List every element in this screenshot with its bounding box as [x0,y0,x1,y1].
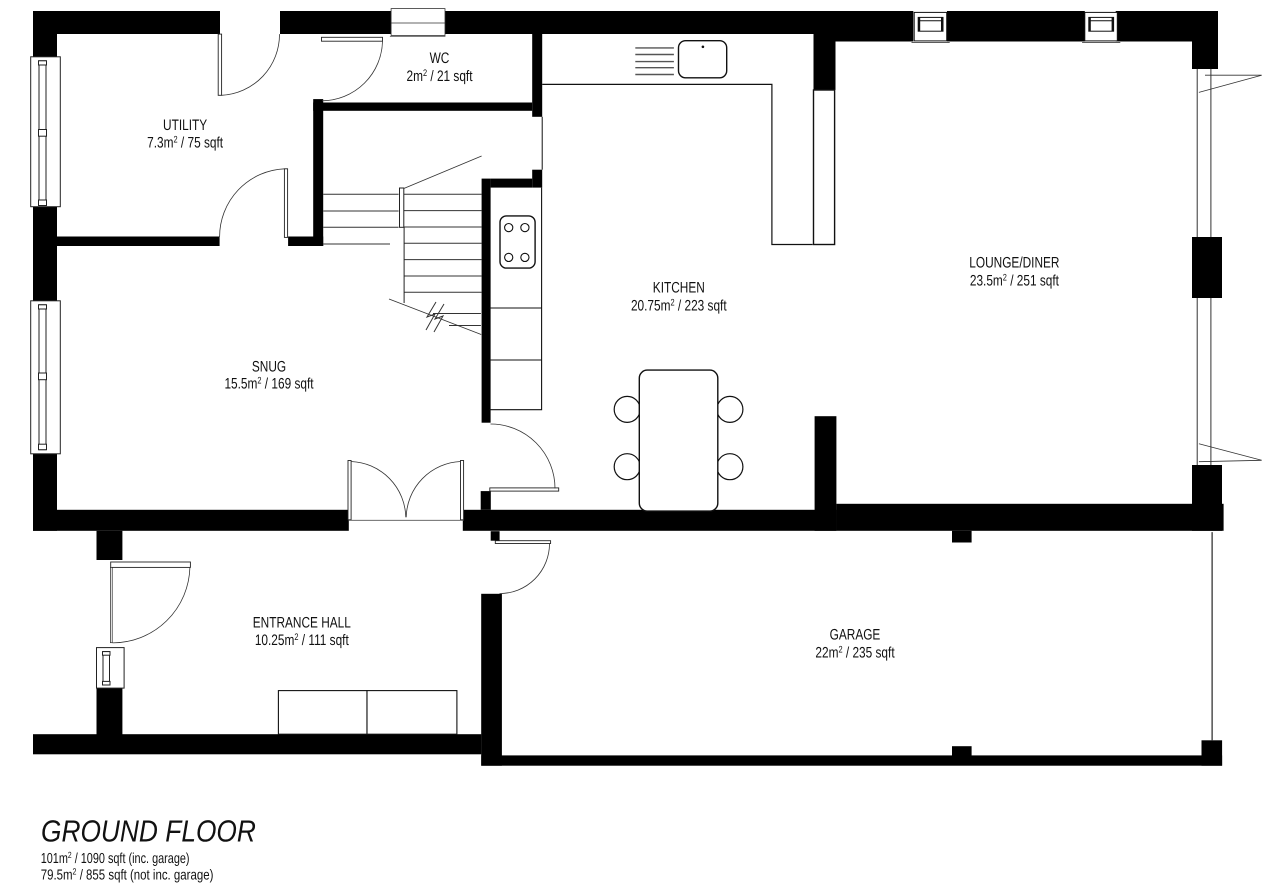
svg-text:101m2 / 1090 sqft (inc. garage: 101m2 / 1090 sqft (inc. garage) [41,850,190,867]
svg-text:10.25m2 / 111 sqft: 10.25m2 / 111 sqft [255,632,350,649]
svg-text:KITCHEN: KITCHEN [653,280,705,297]
svg-text:GARAGE: GARAGE [830,627,881,644]
svg-text:20.75m2 / 223 sqft: 20.75m2 / 223 sqft [631,297,727,314]
svg-text:15.5m2 / 169 sqft: 15.5m2 / 169 sqft [224,376,314,393]
svg-text:GROUND FLOOR: GROUND FLOOR [41,815,256,849]
svg-text:WC: WC [430,50,450,67]
svg-text:22m2 / 235 sqft: 22m2 / 235 sqft [815,644,895,661]
svg-text:7.3m2 / 75 sqft: 7.3m2 / 75 sqft [147,135,224,152]
svg-text:UTILITY: UTILITY [163,117,207,134]
svg-text:23.5m2 / 251 sqft: 23.5m2 / 251 sqft [970,272,1060,289]
svg-text:2m2 / 21 sqft: 2m2 / 21 sqft [406,68,473,85]
svg-text:ENTRANCE HALL: ENTRANCE HALL [253,614,351,631]
svg-text:SNUG: SNUG [252,359,286,376]
svg-text:79.5m2 / 855 sqft (not inc. ga: 79.5m2 / 855 sqft (not inc. garage) [41,867,214,884]
svg-text:LOUNGE/DINER: LOUNGE/DINER [969,254,1059,271]
